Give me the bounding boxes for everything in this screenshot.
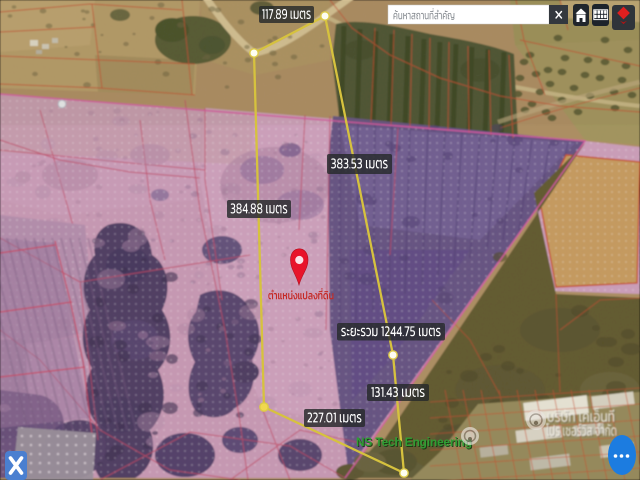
svg-text:NS Tech Engineering: NS Tech Engineering: [356, 435, 472, 449]
